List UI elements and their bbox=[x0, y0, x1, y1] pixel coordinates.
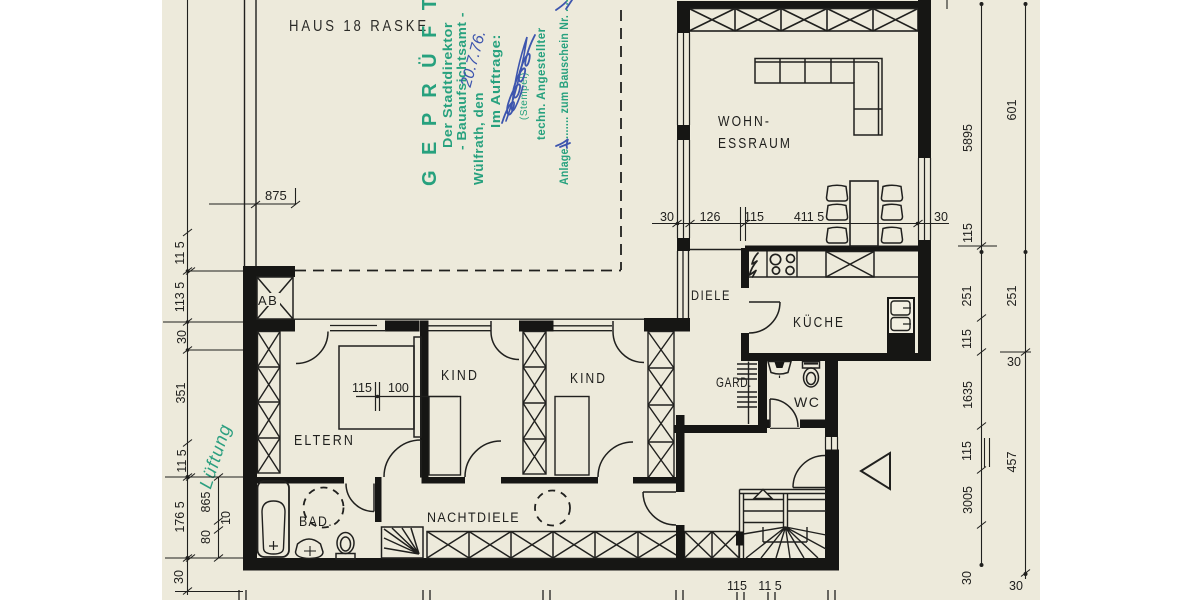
svg-text:WOHN-: WOHN- bbox=[718, 114, 771, 130]
svg-text:875: 875 bbox=[265, 188, 287, 203]
svg-text:G E P R Ü F T: G E P R Ü F T bbox=[418, 0, 441, 186]
svg-text:30: 30 bbox=[960, 571, 974, 585]
svg-text:30: 30 bbox=[175, 330, 189, 344]
svg-text:GARD.: GARD. bbox=[716, 375, 752, 390]
svg-text:30: 30 bbox=[1007, 355, 1021, 369]
svg-text:NACHTDIELE: NACHTDIELE bbox=[427, 510, 520, 525]
svg-text:126: 126 bbox=[700, 210, 721, 224]
svg-text:113 5: 113 5 bbox=[173, 282, 187, 312]
svg-text:351: 351 bbox=[174, 383, 188, 404]
svg-text:457: 457 bbox=[1005, 452, 1019, 473]
svg-text:techn. Angestellter: techn. Angestellter bbox=[536, 27, 548, 140]
svg-text:11 5: 11 5 bbox=[175, 449, 189, 472]
svg-text:ELTERN: ELTERN bbox=[294, 433, 355, 449]
svg-text:KÜCHE: KÜCHE bbox=[793, 313, 845, 331]
svg-text:30: 30 bbox=[1009, 579, 1023, 593]
svg-text:KIND: KIND bbox=[441, 368, 479, 384]
svg-text:HAUS 18 RASKE: HAUS 18 RASKE bbox=[289, 18, 429, 35]
svg-text:3005: 3005 bbox=[961, 486, 975, 514]
svg-text:80: 80 bbox=[199, 530, 213, 544]
svg-text:601: 601 bbox=[1005, 100, 1019, 121]
svg-text:115: 115 bbox=[960, 329, 974, 349]
svg-text:30: 30 bbox=[172, 570, 186, 584]
svg-text:DIELE: DIELE bbox=[691, 287, 731, 303]
svg-text:100: 100 bbox=[388, 381, 409, 395]
svg-text:Der Stadtdirektor: Der Stadtdirektor bbox=[440, 22, 455, 148]
svg-text:30: 30 bbox=[660, 210, 674, 224]
svg-text:251: 251 bbox=[1005, 286, 1019, 307]
svg-text:865: 865 bbox=[199, 492, 213, 513]
svg-text:10: 10 bbox=[219, 511, 233, 525]
svg-text:30: 30 bbox=[934, 210, 948, 224]
svg-text:11 5: 11 5 bbox=[173, 241, 187, 264]
svg-text:AB: AB bbox=[258, 293, 278, 308]
svg-text:1635: 1635 bbox=[961, 381, 975, 409]
svg-text:115: 115 bbox=[352, 381, 372, 395]
svg-text:251: 251 bbox=[960, 286, 974, 307]
svg-text:411 5: 411 5 bbox=[794, 210, 824, 224]
svg-text:176 5: 176 5 bbox=[173, 501, 187, 532]
svg-text:Wülfrath, den: Wülfrath, den bbox=[472, 92, 486, 185]
svg-text:115: 115 bbox=[961, 223, 975, 243]
svg-text:Im Auftrage:: Im Auftrage: bbox=[488, 34, 503, 128]
svg-text:115: 115 bbox=[744, 210, 764, 224]
svg-text:115: 115 bbox=[960, 441, 974, 461]
svg-text:BAD.: BAD. bbox=[299, 513, 333, 529]
svg-text:Anlage ......... zum Bauschein: Anlage ......... zum Bauschein Nr. .... bbox=[559, 0, 571, 185]
svg-text:WC: WC bbox=[794, 394, 820, 410]
svg-text:5895: 5895 bbox=[961, 124, 975, 152]
svg-text:115: 115 bbox=[727, 579, 747, 593]
svg-text:ESSRAUM: ESSRAUM bbox=[718, 136, 792, 152]
svg-text:KIND: KIND bbox=[570, 371, 607, 387]
svg-text:11 5: 11 5 bbox=[758, 579, 781, 593]
